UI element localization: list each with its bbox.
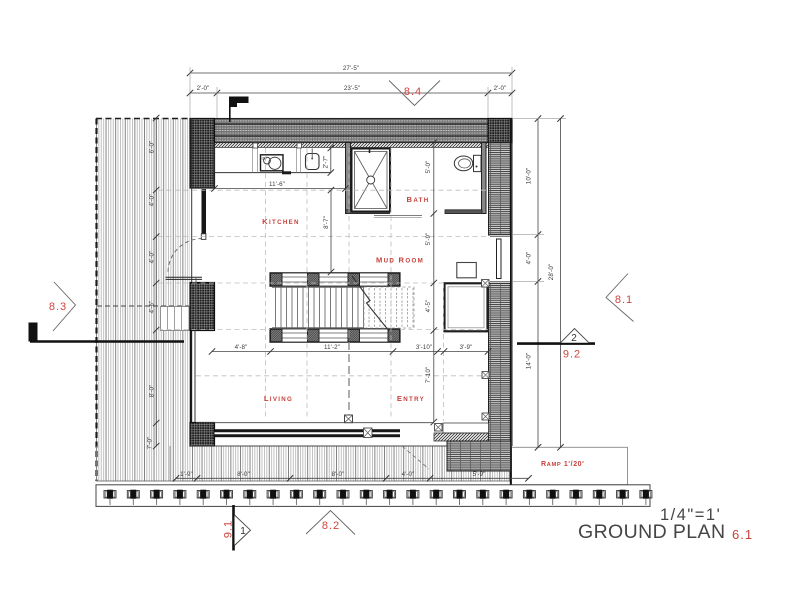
svg-text:9.1: 9.1 [223,520,235,538]
svg-text:4'-6": 4'-6" [149,301,156,314]
svg-text:10'-0": 10'-0" [526,168,533,184]
svg-text:6.1: 6.1 [732,527,753,542]
svg-text:4'-0": 4'-0" [402,471,415,478]
svg-text:2'-7": 2'-7" [323,156,330,169]
svg-text:1'-9": 1'-9" [180,471,193,478]
svg-text:MUD ROOM: MUD ROOM [376,256,424,265]
svg-text:8.3: 8.3 [49,301,67,313]
svg-text:5'-9": 5'-9" [425,233,432,246]
svg-text:4'-0": 4'-0" [149,194,156,207]
svg-text:3'-9": 3'-9" [460,344,473,351]
svg-text:4'-0": 4'-0" [526,252,533,265]
svg-text:2: 2 [571,333,577,344]
svg-text:KITCHEN: KITCHEN [262,217,300,226]
svg-text:8'-0": 8'-0" [149,385,156,398]
svg-text:6'-0": 6'-0" [149,141,156,154]
svg-text:7'-0": 7'-0" [147,437,154,450]
svg-text:5'-0": 5'-0" [425,161,432,174]
svg-text:14'-0": 14'-0" [526,353,533,369]
svg-text:8.1: 8.1 [615,294,633,306]
svg-text:2'-0": 2'-0" [494,85,507,92]
svg-text:9.2: 9.2 [563,349,581,361]
svg-text:11'-6": 11'-6" [269,181,285,188]
svg-text:5'-9": 5'-9" [473,471,486,478]
svg-text:LIVING: LIVING [264,394,293,403]
svg-text:3'-10": 3'-10" [416,344,432,351]
svg-text:4'-0": 4'-0" [149,251,156,264]
svg-text:GROUND PLAN: GROUND PLAN [578,521,725,543]
svg-text:27'-5": 27'-5" [343,65,359,72]
svg-text:RAMP 1'/20': RAMP 1'/20' [541,461,584,468]
svg-text:BATH: BATH [407,195,430,204]
svg-text:2'-0": 2'-0" [197,85,210,92]
svg-text:8'-0": 8'-0" [237,471,250,478]
svg-text:8'-0": 8'-0" [332,471,345,478]
svg-text:28'-0": 28'-0" [548,264,555,280]
svg-text:1: 1 [240,526,246,537]
svg-text:4'-5": 4'-5" [425,300,432,313]
svg-text:4'-8": 4'-8" [235,344,248,351]
svg-text:8'-7": 8'-7" [323,216,330,229]
svg-text:7'-10": 7'-10" [425,367,432,383]
svg-text:ENTRY: ENTRY [397,394,425,403]
svg-text:23'-5": 23'-5" [344,85,360,92]
svg-text:oo: oo [262,156,268,161]
svg-text:8.4: 8.4 [404,86,422,98]
svg-text:8.2: 8.2 [322,520,340,532]
svg-text:11'-2": 11'-2" [324,344,340,351]
